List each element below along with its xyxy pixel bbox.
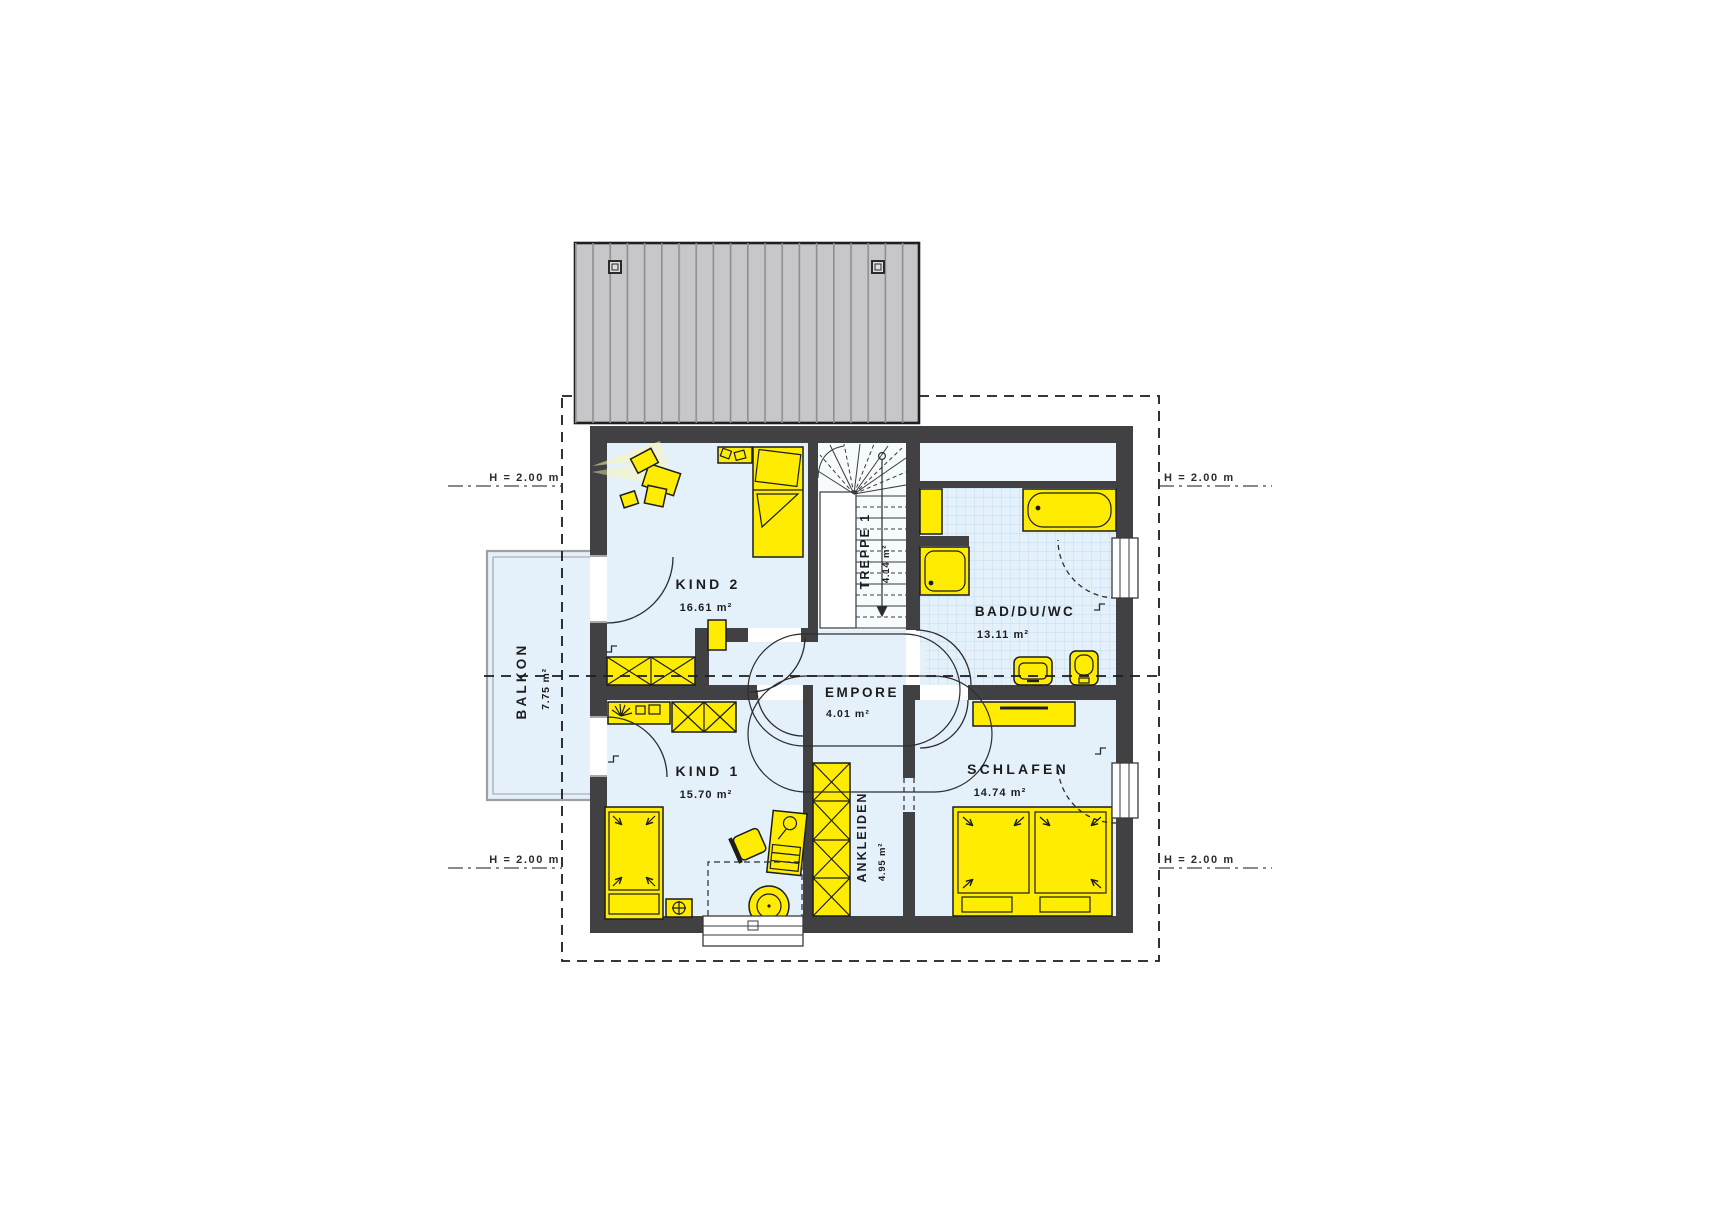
room-label-balkon: BALKON xyxy=(514,643,529,720)
wall-kind2-stair xyxy=(808,443,818,642)
wall-shower-stub xyxy=(920,536,969,546)
shower xyxy=(920,547,969,595)
bed-kind2 xyxy=(753,447,803,557)
wardrobe-ankleiden xyxy=(813,763,850,916)
wardrobe-kind2 xyxy=(607,657,695,685)
stair-well xyxy=(820,492,856,628)
nightstand xyxy=(666,899,692,917)
height-label-bottom-right: H = 2.00 m xyxy=(1164,854,1235,866)
window-schlafen xyxy=(1112,763,1138,818)
roof-stripes xyxy=(575,243,919,423)
room-label-ankleiden: ANKLEIDEN xyxy=(855,792,869,883)
bathtub xyxy=(1023,489,1116,531)
ankleiden-opening xyxy=(903,778,915,812)
window-bad xyxy=(1112,538,1138,598)
room-label-kind2: KIND 2 xyxy=(675,576,740,592)
room-label-empore: EMPORE xyxy=(825,685,899,700)
window-kind1-bottom xyxy=(703,916,803,946)
floorplan-page: TREPPE 1 4.14 m² xyxy=(0,0,1720,1216)
room-label-kind1: KIND 1 xyxy=(675,763,740,779)
balcony-door-kind2 xyxy=(590,555,607,623)
room-area-balkon: 7.75 m² xyxy=(540,668,552,710)
height-label-top-left: H = 2.00 m xyxy=(489,472,560,484)
room-area-empore: 4.01 m² xyxy=(826,708,870,720)
shelf-with-plant xyxy=(608,702,670,724)
wall-bath-alcove xyxy=(920,481,1116,488)
schlafen-door-opening xyxy=(920,685,968,700)
balcony-door-kind1 xyxy=(590,716,607,777)
kind1-door-opening xyxy=(757,685,803,700)
stair-area-label: 4.14 m² xyxy=(881,545,892,583)
floorplan-drawing: TREPPE 1 4.14 m² xyxy=(0,0,1720,1216)
stair-label: TREPPE 1 xyxy=(858,513,872,589)
room-area-schlafen: 14.74 m² xyxy=(974,787,1027,799)
sink xyxy=(1014,657,1052,685)
toilet xyxy=(1070,651,1098,685)
wardrobe-kind1 xyxy=(672,702,736,732)
wall-kind1-top xyxy=(590,685,757,700)
room-area-ankleiden: 4.95 m² xyxy=(877,843,888,881)
side-table xyxy=(708,620,726,650)
double-bed xyxy=(953,807,1112,916)
height-label-top-right: H = 2.00 m xyxy=(1164,472,1235,484)
room-label-schlafen: SCHLAFEN xyxy=(967,761,1069,777)
height-label-bottom-left: H = 2.00 m xyxy=(489,854,560,866)
roof-window xyxy=(872,261,884,273)
bath-cabinet xyxy=(920,489,942,534)
wall-stub-empore-left xyxy=(695,642,709,685)
roof xyxy=(575,243,919,423)
room-area-kind2: 16.61 m² xyxy=(680,602,733,614)
desk-kind1 xyxy=(767,810,807,875)
room-area-bad: 13.11 m² xyxy=(977,629,1029,641)
wall-kind1-ankleiden xyxy=(803,685,813,916)
bath-alcove-floor xyxy=(920,443,1116,481)
roof-window xyxy=(609,261,621,273)
empore-floor xyxy=(709,642,925,685)
room-area-kind1: 15.70 m² xyxy=(680,789,733,801)
bed-kind1 xyxy=(605,807,663,919)
chair xyxy=(644,485,666,507)
wall-stair-bad xyxy=(906,443,920,630)
empore-floor-understair xyxy=(818,630,906,644)
room-label-bad: BAD/DU/WC xyxy=(975,604,1075,619)
